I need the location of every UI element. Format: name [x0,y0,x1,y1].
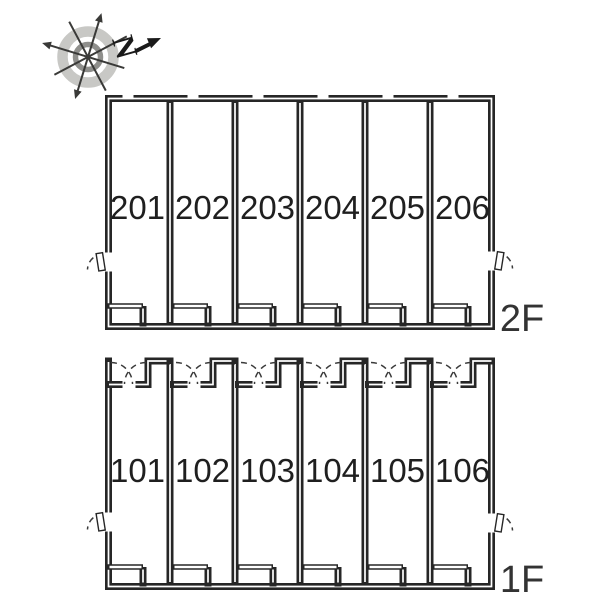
door-swing-arc [371,363,393,385]
entrance-wall [170,361,235,385]
unit-number: 101 [110,452,165,489]
entrance-wall [235,361,300,385]
unit-number: 203 [240,189,295,226]
door-swing-arc [111,363,133,385]
window-gap [318,94,329,99]
unit-number: 202 [175,189,230,226]
side-door [488,514,513,533]
door-swing-arc [436,363,458,385]
floor-1f: 101102103104105106 1F [88,358,545,600]
unit-number: 106 [435,452,490,489]
unit-cell: 101 [105,361,170,587]
window-gap [383,94,394,99]
door-swing-arc [241,363,263,385]
unit-number: 201 [110,189,165,226]
unit-number: 105 [370,452,425,489]
unit-cell: 201 [107,94,165,326]
floor-2f: 201202203204205206 2F [88,94,545,340]
window-gap [253,94,264,99]
unit-number: 204 [305,189,360,226]
unit-number: 102 [175,452,230,489]
side-door [88,253,113,272]
unit-cell: 105 [365,361,430,587]
entrance-wall [430,361,495,385]
unit-number: 103 [240,452,295,489]
door-swing-arc [450,363,472,385]
compass-north: N [105,31,161,62]
floorplan-page: N 201202203204205206 2F 1011021031041051… [0,0,600,600]
unit-number: 205 [370,189,425,226]
floor-label: 2F [500,298,544,340]
floor-plan-drawing: N 201202203204205206 2F 1011021031041051… [0,0,600,600]
unit-cell: 206 [432,94,490,326]
door-swing-arc [255,363,277,385]
window-gap [123,94,134,99]
unit-cell: 202 [172,94,230,326]
unit-cell: 103 [235,361,300,587]
door-swing-arc [125,363,147,385]
door-swing-arc [176,363,198,385]
entrance-wall [300,361,365,385]
door-swing-arc [320,363,342,385]
unit-number: 206 [435,189,490,226]
unit-cell: 106 [430,361,495,587]
floor-label: 1F [500,559,544,600]
entrance-wall [365,361,430,385]
unit-number: 104 [305,452,360,489]
window-gap [188,94,199,99]
entrance-wall [105,361,170,385]
door-swing-arc [306,363,328,385]
unit-cell: 205 [367,94,425,326]
compass-north-label: N [105,31,145,62]
unit-cell: 102 [170,361,235,587]
unit-cell: 204 [302,94,360,326]
unit-cell: 104 [300,361,365,587]
side-door [88,513,113,532]
door-swing-arc [190,363,212,385]
unit-cell: 203 [237,94,295,326]
window-gap [448,94,459,99]
door-swing-arc [385,363,407,385]
side-door [488,252,513,271]
